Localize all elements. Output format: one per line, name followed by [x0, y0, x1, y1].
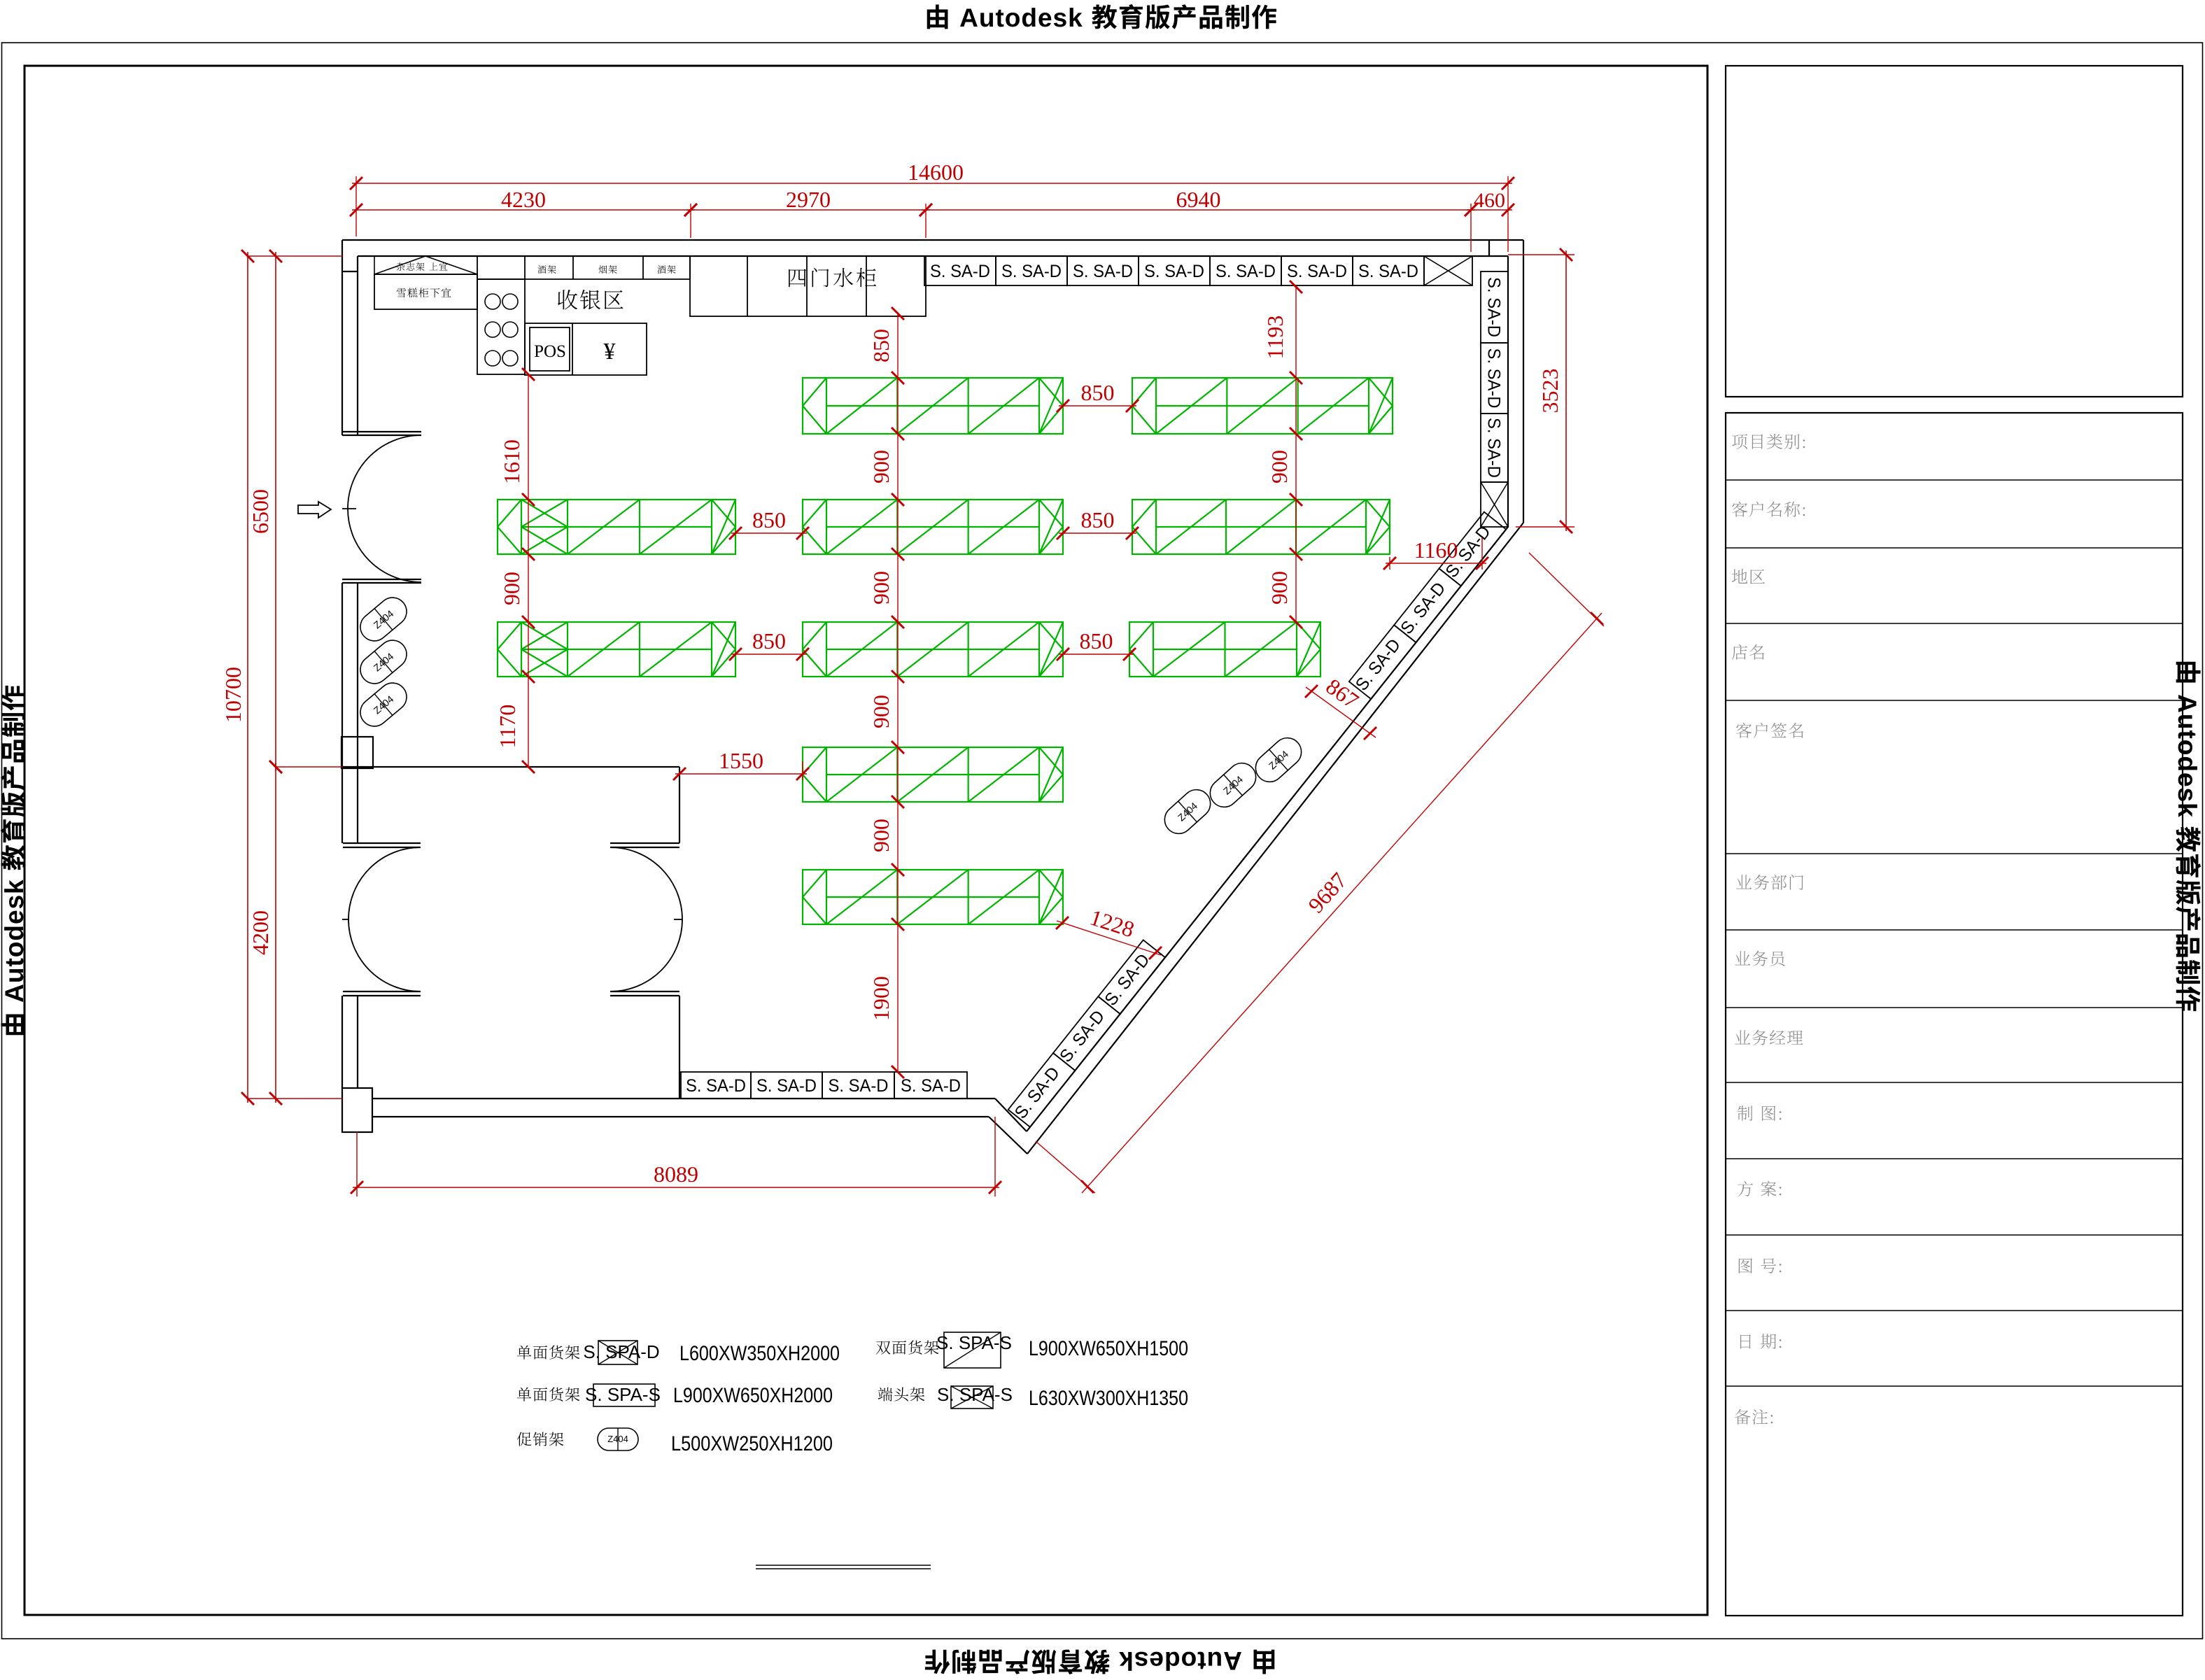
svg-text:2970: 2970: [786, 187, 831, 212]
svg-text:S. SA-D: S. SA-D: [901, 1076, 961, 1096]
svg-text:S. SA-D: S. SA-D: [1001, 262, 1062, 281]
svg-text:L900XW650XH1500: L900XW650XH1500: [1029, 1337, 1188, 1360]
svg-text:900: 900: [868, 695, 894, 728]
svg-text:850: 850: [752, 507, 786, 532]
svg-text:Z404: Z404: [607, 1434, 628, 1444]
svg-text:10700: 10700: [220, 667, 246, 723]
svg-text:S. SPA-S: S. SPA-S: [937, 1384, 1013, 1405]
svg-text:S. SPA-S: S. SPA-S: [585, 1384, 661, 1405]
svg-text:S. SA-D: S. SA-D: [686, 1076, 746, 1096]
svg-text:460: 460: [1474, 189, 1505, 212]
svg-text:14600: 14600: [908, 160, 964, 185]
svg-text:S. SA-D: S. SA-D: [930, 262, 990, 281]
svg-text:1550: 1550: [719, 748, 763, 773]
svg-text:8089: 8089: [654, 1162, 698, 1187]
svg-text:S. SA-D: S. SA-D: [1216, 262, 1276, 281]
svg-text:6940: 6940: [1176, 187, 1221, 212]
svg-text:S. SA-D: S. SA-D: [1144, 262, 1204, 281]
svg-text:4230: 4230: [501, 187, 546, 212]
svg-text:900: 900: [868, 450, 894, 483]
svg-text:900: 900: [868, 571, 894, 605]
svg-text:S. SA-D: S. SA-D: [1358, 262, 1418, 281]
svg-text:L630XW300XH1350: L630XW300XH1350: [1029, 1387, 1188, 1410]
svg-text:S. SA-D: S. SA-D: [1484, 348, 1504, 409]
svg-text:L500XW250XH1200: L500XW250XH1200: [671, 1432, 833, 1455]
svg-text:3523: 3523: [1537, 369, 1563, 414]
svg-text:4200: 4200: [248, 910, 273, 955]
svg-text:S. SA-D: S. SA-D: [1484, 277, 1504, 337]
svg-text:6500: 6500: [248, 489, 273, 534]
svg-text:850: 850: [752, 628, 786, 654]
svg-text:L900XW650XH2000: L900XW650XH2000: [673, 1384, 833, 1407]
svg-text:1170: 1170: [495, 705, 520, 749]
svg-text:1900: 1900: [868, 976, 894, 1021]
svg-text:S. SA-D: S. SA-D: [1073, 262, 1133, 281]
svg-text:POS: POS: [534, 342, 566, 361]
svg-text:850: 850: [868, 329, 894, 362]
svg-text:S. SA-D: S. SA-D: [756, 1076, 817, 1096]
svg-text:1193: 1193: [1262, 316, 1288, 360]
svg-text:850: 850: [1080, 628, 1113, 654]
svg-text:900: 900: [868, 819, 894, 852]
svg-text:900: 900: [499, 572, 524, 605]
svg-text:850: 850: [1081, 380, 1115, 405]
svg-text:S. SA-D: S. SA-D: [1287, 262, 1347, 281]
svg-text:L600XW350XH2000: L600XW350XH2000: [679, 1342, 840, 1365]
svg-text:S. SPA-S: S. SPA-S: [936, 1332, 1012, 1353]
svg-text:900: 900: [1267, 571, 1292, 605]
svg-text:900: 900: [1267, 450, 1292, 483]
svg-text:1160: 1160: [1414, 537, 1458, 563]
svg-text:1610: 1610: [499, 439, 524, 484]
svg-text:¥: ¥: [604, 339, 616, 365]
svg-text:S. SA-D: S. SA-D: [1484, 418, 1504, 478]
svg-text:S. SA-D: S. SA-D: [829, 1076, 889, 1096]
svg-text:S. SPA-D: S. SPA-D: [583, 1341, 659, 1362]
svg-text:850: 850: [1081, 507, 1115, 532]
